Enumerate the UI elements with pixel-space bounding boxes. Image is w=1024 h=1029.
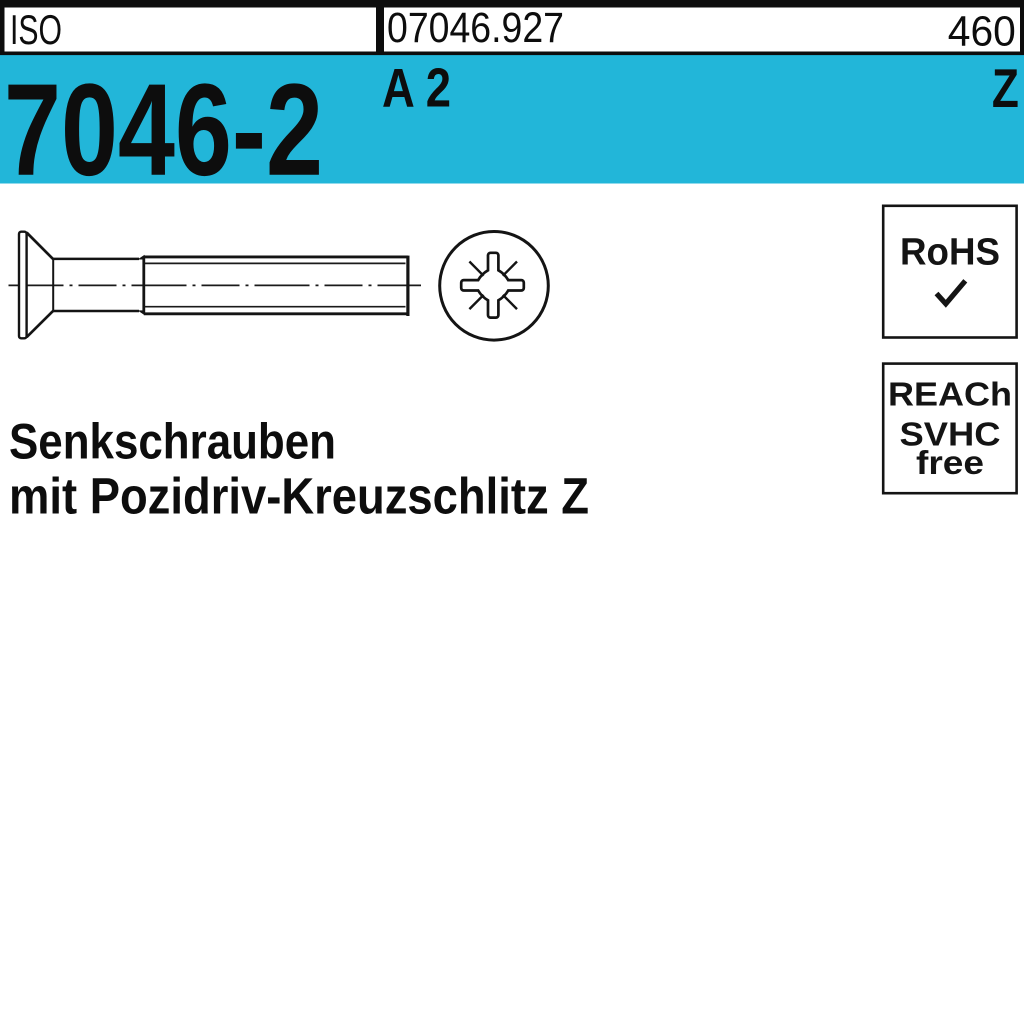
svg-text:07046.927: 07046.927 [387,4,564,51]
svg-text:460: 460 [948,8,1016,55]
svg-text:RoHS: RoHS [900,232,1000,274]
svg-text:REACh: REACh [888,375,1012,413]
svg-text:free: free [916,444,984,482]
svg-text:Senkschrauben: Senkschrauben [9,413,336,470]
svg-text:ISO: ISO [10,6,62,53]
svg-text:Z: Z [992,57,1019,119]
svg-text:mit Pozidriv-Kreuzschlitz Z: mit Pozidriv-Kreuzschlitz Z [9,467,589,524]
svg-text:7046-2: 7046-2 [4,56,323,203]
svg-text:A 2: A 2 [382,57,451,119]
